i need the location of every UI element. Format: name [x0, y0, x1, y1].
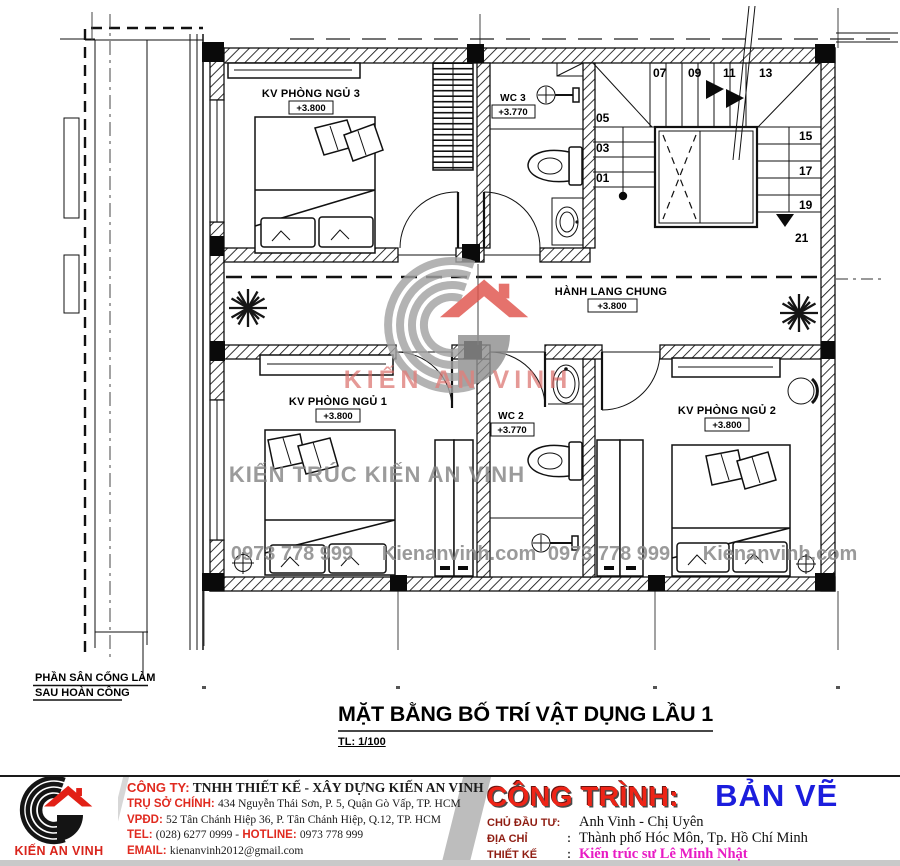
project-title-row: CÔNG TRÌNH: BẢN VẼ	[487, 778, 900, 815]
designer-row: THIẾT KẾ : Kiến trúc sư Lê Minh Nhật	[487, 847, 900, 863]
hq-address: 434 Nguyễn Thái Sơn, P. 5, Quận Gò Vấp, …	[218, 798, 461, 810]
company-info: CÔNG TY: TNHH THIẾT KẾ - XÂY DỰNG KIẾN A…	[127, 780, 457, 859]
phone-row: TEL: (028) 6277 0999 - HOTLINE: 0973 778…	[127, 828, 457, 843]
stair-step-11: 11	[723, 66, 736, 80]
stair-step-17: 17	[799, 164, 813, 178]
owner-label: CHỦ ĐẦU TƯ:	[487, 816, 567, 831]
project-info: CÔNG TRÌNH: BẢN VẼ CHỦ ĐẦU TƯ: Anh Vinh …	[487, 777, 900, 864]
hq-label: TRỤ SỞ CHÍNH:	[127, 798, 215, 810]
company-logo-text: KIẾN AN VINH	[0, 844, 118, 858]
level-bedroom1: +3.800	[323, 411, 352, 422]
front-yard-strip	[60, 14, 203, 678]
owner-value: Anh Vinh - Chị Uyên	[579, 815, 704, 830]
watermark-site: Kienanvinh.com	[703, 543, 857, 565]
sink-wc3	[552, 198, 583, 245]
wc3-fixtures	[484, 63, 583, 248]
label-wc2: WC 2	[498, 411, 524, 422]
hq-row: TRỤ SỞ CHÍNH: 434 Nguyễn Thái Sơn, P. 5,…	[127, 797, 457, 812]
level-bedroom2: +3.800	[712, 420, 741, 431]
chair-bedroom2	[788, 378, 817, 404]
level-bedroom3: +3.800	[296, 103, 325, 114]
tel-label: TEL:	[127, 829, 153, 841]
stair-step-09: 09	[688, 66, 702, 80]
stair-step-05: 05	[596, 111, 610, 125]
email-value: kienanvinh2012@gmail.com	[170, 845, 304, 857]
hotline-label: HOTLINE:	[242, 829, 296, 841]
door-wc3	[484, 192, 540, 248]
door-bedroom3	[400, 192, 458, 248]
note-line1: PHẦN SÂN CỐNG LÀM	[35, 670, 155, 684]
email-label: EMAIL:	[127, 845, 167, 857]
stair-step-19: 19	[799, 198, 813, 212]
email-row: EMAIL: kienanvinh2012@gmail.com	[127, 844, 457, 859]
company-name-row: CÔNG TY: TNHH THIẾT KẾ - XÂY DỰNG KIẾN A…	[127, 780, 457, 797]
stair-step-07: 07	[653, 66, 667, 80]
center-watermark-logo: KIẾN AN VINH	[344, 261, 573, 394]
toilet-wc3	[528, 147, 582, 185]
designer-sep: :	[567, 847, 579, 862]
project-value: BẢN VẼ	[715, 778, 838, 814]
watermark-center-text: KIẾN TRÚC KIẾN AN VINH	[229, 462, 525, 487]
office-row: VPĐD: 52 Tân Chánh Hiệp 36, P. Tân Chánh…	[127, 813, 457, 828]
level-hallway: +3.800	[597, 301, 626, 312]
address-sep: :	[567, 831, 579, 846]
label-wc3: WC 3	[500, 93, 526, 104]
watermark-phone: 0973 778 999	[548, 543, 670, 565]
label-bedroom1: KV PHÒNG NGỦ 1	[289, 395, 387, 408]
stair-step-13: 13	[759, 66, 773, 80]
drawing-title-block: MẶT BẰNG BỐ TRÍ VẬT DỤNG LẦU 1 TL: 1/100	[338, 702, 713, 748]
stair-step-03: 03	[596, 141, 610, 155]
address-label: ĐỊA CHỈ	[487, 832, 567, 847]
title-block-footer: KIẾN AN VINH CÔNG TY: TNHH THIẾT KẾ - XÂ…	[0, 775, 900, 866]
label-bedroom2: KV PHÒNG NGỦ 2	[678, 404, 776, 417]
watermark-phone: 0973 778 999	[231, 543, 353, 565]
watermark-brand-text: KIẾN AN VINH	[344, 365, 573, 394]
office-address: 52 Tân Chánh Hiệp 36, P. Tân Chánh Hiệp,…	[166, 814, 441, 826]
hotline-value: 0973 778 999	[300, 829, 363, 841]
office-label: VPĐD:	[127, 814, 163, 826]
designer-label: THIẾT KẾ	[487, 848, 567, 863]
floor-plan-drawing: 05 03 01 07 09 11 13 15 17 19 21	[0, 0, 900, 772]
staircase: 05 03 01 07 09 11 13 15 17 19 21	[593, 6, 821, 245]
drawing-sheet: 05 03 01 07 09 11 13 15 17 19 21	[0, 0, 900, 864]
door-bedroom2	[602, 352, 660, 410]
stair-step-15: 15	[799, 129, 813, 143]
stair-step-21: 21	[795, 231, 809, 245]
plant-icon	[780, 294, 818, 332]
level-wc3: +3.770	[498, 107, 527, 118]
company-label: CÔNG TY:	[127, 780, 190, 795]
address-value: Thành phố Hóc Môn, Tp. Hồ Chí Minh	[579, 831, 808, 846]
shower-wc3	[537, 86, 579, 104]
designer-value: Kiến trúc sư Lê Minh Nhật	[579, 847, 748, 862]
window-bedroom3	[210, 100, 224, 222]
address-row: ĐỊA CHỈ : Thành phố Hóc Môn, Tp. Hồ Chí …	[487, 831, 900, 847]
construction-note: PHẦN SÂN CỐNG LÀM SAU HOÀN CÔNG	[33, 670, 155, 700]
toilet-wc2	[528, 442, 582, 480]
project-label: CÔNG TRÌNH:	[487, 781, 679, 813]
stair-step-01: 01	[596, 171, 610, 185]
drawing-scale: TL: 1/100	[338, 736, 713, 748]
hallway	[226, 264, 818, 345]
window-bedroom1	[210, 400, 224, 540]
plant-icon	[229, 289, 267, 327]
company-name: TNHH THIẾT KẾ - XÂY DỰNG KIẾN AN VINH	[193, 780, 484, 795]
tel-value: (028) 6277 0999 -	[156, 829, 239, 841]
bed-bedroom3	[255, 117, 383, 253]
drawing-title: MẶT BẰNG BỐ TRÍ VẬT DỤNG LẦU 1	[338, 702, 713, 732]
owner-row: CHỦ ĐẦU TƯ: Anh Vinh - Chị Uyên	[487, 815, 900, 831]
level-wc2: +3.770	[497, 425, 526, 436]
note-line2: SAU HOÀN CÔNG	[35, 686, 130, 699]
company-logo: KIẾN AN VINH	[0, 777, 118, 860]
label-bedroom3: KV PHÒNG NGỦ 3	[262, 87, 360, 100]
label-hallway: HÀNH LANG CHUNG	[555, 285, 667, 298]
watermark-site: Kienanvinh.com	[382, 543, 536, 565]
